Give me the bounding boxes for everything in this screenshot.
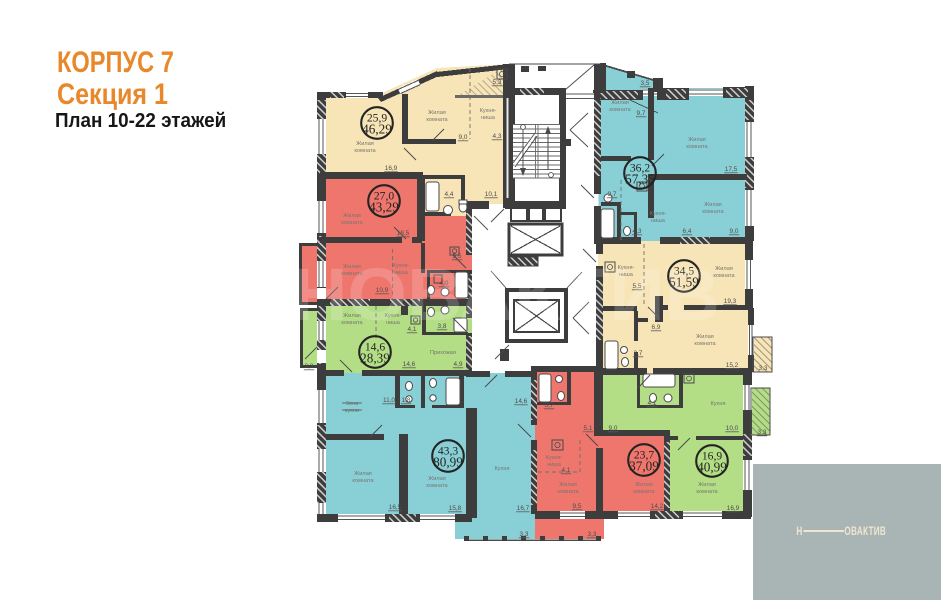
svg-text:5,3: 5,3 — [493, 79, 502, 86]
svg-text:9,0: 9,0 — [730, 228, 739, 235]
svg-text:комната: комната — [341, 220, 363, 226]
svg-text:комната: комната — [426, 117, 448, 123]
svg-text:9,0: 9,0 — [609, 425, 618, 432]
svg-text:57,35: 57,35 — [625, 172, 655, 187]
svg-text:Жилая: Жилая — [354, 471, 372, 477]
svg-text:комната: комната — [633, 489, 655, 495]
svg-text:комната: комната — [426, 483, 448, 489]
svg-text:10,1: 10,1 — [485, 191, 498, 198]
svg-text:4,3: 4,3 — [493, 133, 502, 140]
svg-text:Кухня-: Кухня- — [480, 108, 497, 114]
svg-text:14,6: 14,6 — [403, 361, 416, 368]
svg-text:комната: комната — [352, 478, 374, 484]
svg-text:4,1: 4,1 — [648, 400, 657, 407]
svg-text:Жилая: Жилая — [428, 476, 446, 482]
svg-text:Жилая: Жилая — [688, 137, 706, 143]
svg-text:Зона: Зона — [346, 401, 360, 407]
svg-text:18,5: 18,5 — [397, 230, 410, 237]
svg-text:комната: комната — [686, 144, 708, 150]
svg-text:9,7: 9,7 — [608, 191, 617, 198]
svg-text:Кухня: Кухня — [495, 466, 510, 472]
svg-text:16,9: 16,9 — [727, 505, 740, 512]
svg-text:16,5: 16,5 — [389, 504, 402, 511]
svg-text:5,1: 5,1 — [584, 425, 593, 432]
svg-text:4,3: 4,3 — [633, 228, 642, 235]
svg-text:43,29: 43,29 — [369, 200, 399, 215]
svg-text:3,7: 3,7 — [545, 402, 554, 409]
svg-text:16,7: 16,7 — [517, 505, 530, 512]
svg-text:Жилая: Жилая — [428, 110, 446, 116]
svg-text:Жилая: Жилая — [559, 482, 577, 488]
svg-text:15,2: 15,2 — [726, 362, 739, 369]
svg-text:80,99: 80,99 — [433, 455, 463, 470]
svg-text:3,3: 3,3 — [758, 429, 767, 436]
svg-text:11,0: 11,0 — [383, 397, 395, 404]
svg-text:46,29: 46,29 — [362, 122, 392, 137]
svg-text:комната: комната — [609, 107, 631, 113]
svg-text:4,9: 4,9 — [454, 361, 463, 368]
svg-text:1,8: 1,8 — [402, 397, 411, 404]
svg-text:3,3: 3,3 — [588, 531, 597, 538]
svg-text:ниша: ниша — [547, 462, 562, 468]
svg-text:ниша: ниша — [651, 218, 666, 224]
svg-text:Жилая: Жилая — [635, 482, 653, 488]
svg-text:ниша: ниша — [481, 115, 496, 121]
svg-text:9,7: 9,7 — [637, 110, 646, 117]
svg-text:комната: комната — [702, 209, 724, 215]
svg-text:6,4: 6,4 — [683, 228, 692, 235]
svg-text:16,9: 16,9 — [385, 165, 398, 172]
svg-text:комната: комната — [696, 489, 718, 495]
svg-text:10,0: 10,0 — [726, 425, 739, 432]
svg-text:Жилая: Жилая — [698, 482, 716, 488]
svg-text:14,2: 14,2 — [651, 503, 664, 510]
svg-text:кухни: кухни — [345, 408, 359, 414]
svg-text:3,3: 3,3 — [305, 363, 314, 370]
svg-text:15,8: 15,8 — [449, 505, 462, 512]
svg-text:Прихожая: Прихожая — [430, 350, 456, 356]
svg-text:Жилая: Жилая — [343, 213, 361, 219]
svg-text:комната: комната — [694, 341, 716, 347]
svg-text:3,3: 3,3 — [520, 531, 529, 538]
svg-text:4,4: 4,4 — [445, 191, 454, 198]
svg-text:3,3: 3,3 — [759, 365, 768, 372]
svg-text:9,5: 9,5 — [573, 503, 582, 510]
svg-text:37,09: 37,09 — [629, 459, 659, 474]
svg-text:комната: комната — [557, 489, 579, 495]
svg-text:19,3: 19,3 — [724, 298, 737, 305]
svg-text:3,7: 3,7 — [634, 350, 643, 357]
svg-text:комната: комната — [354, 148, 376, 154]
svg-text:14,6: 14,6 — [515, 398, 528, 405]
svg-text:Кухня: Кухня — [711, 401, 726, 407]
svg-text:40,99: 40,99 — [697, 460, 727, 475]
svg-text:Жилая: Жилая — [356, 141, 374, 147]
svg-text:17,5: 17,5 — [725, 166, 738, 173]
svg-text:Жилая: Жилая — [611, 100, 629, 106]
svg-text:Жилая: Жилая — [704, 202, 722, 208]
svg-text:Кухня-: Кухня- — [546, 455, 563, 461]
svg-text:4,1: 4,1 — [562, 467, 571, 474]
svg-text:НОВАКТИВ: НОВАКТИВ — [292, 253, 720, 336]
svg-text:28,39: 28,39 — [360, 351, 390, 366]
svg-text:Кухня-: Кухня- — [650, 211, 667, 217]
svg-text:9,0: 9,0 — [459, 134, 468, 141]
svg-text:3,5: 3,5 — [641, 80, 650, 87]
